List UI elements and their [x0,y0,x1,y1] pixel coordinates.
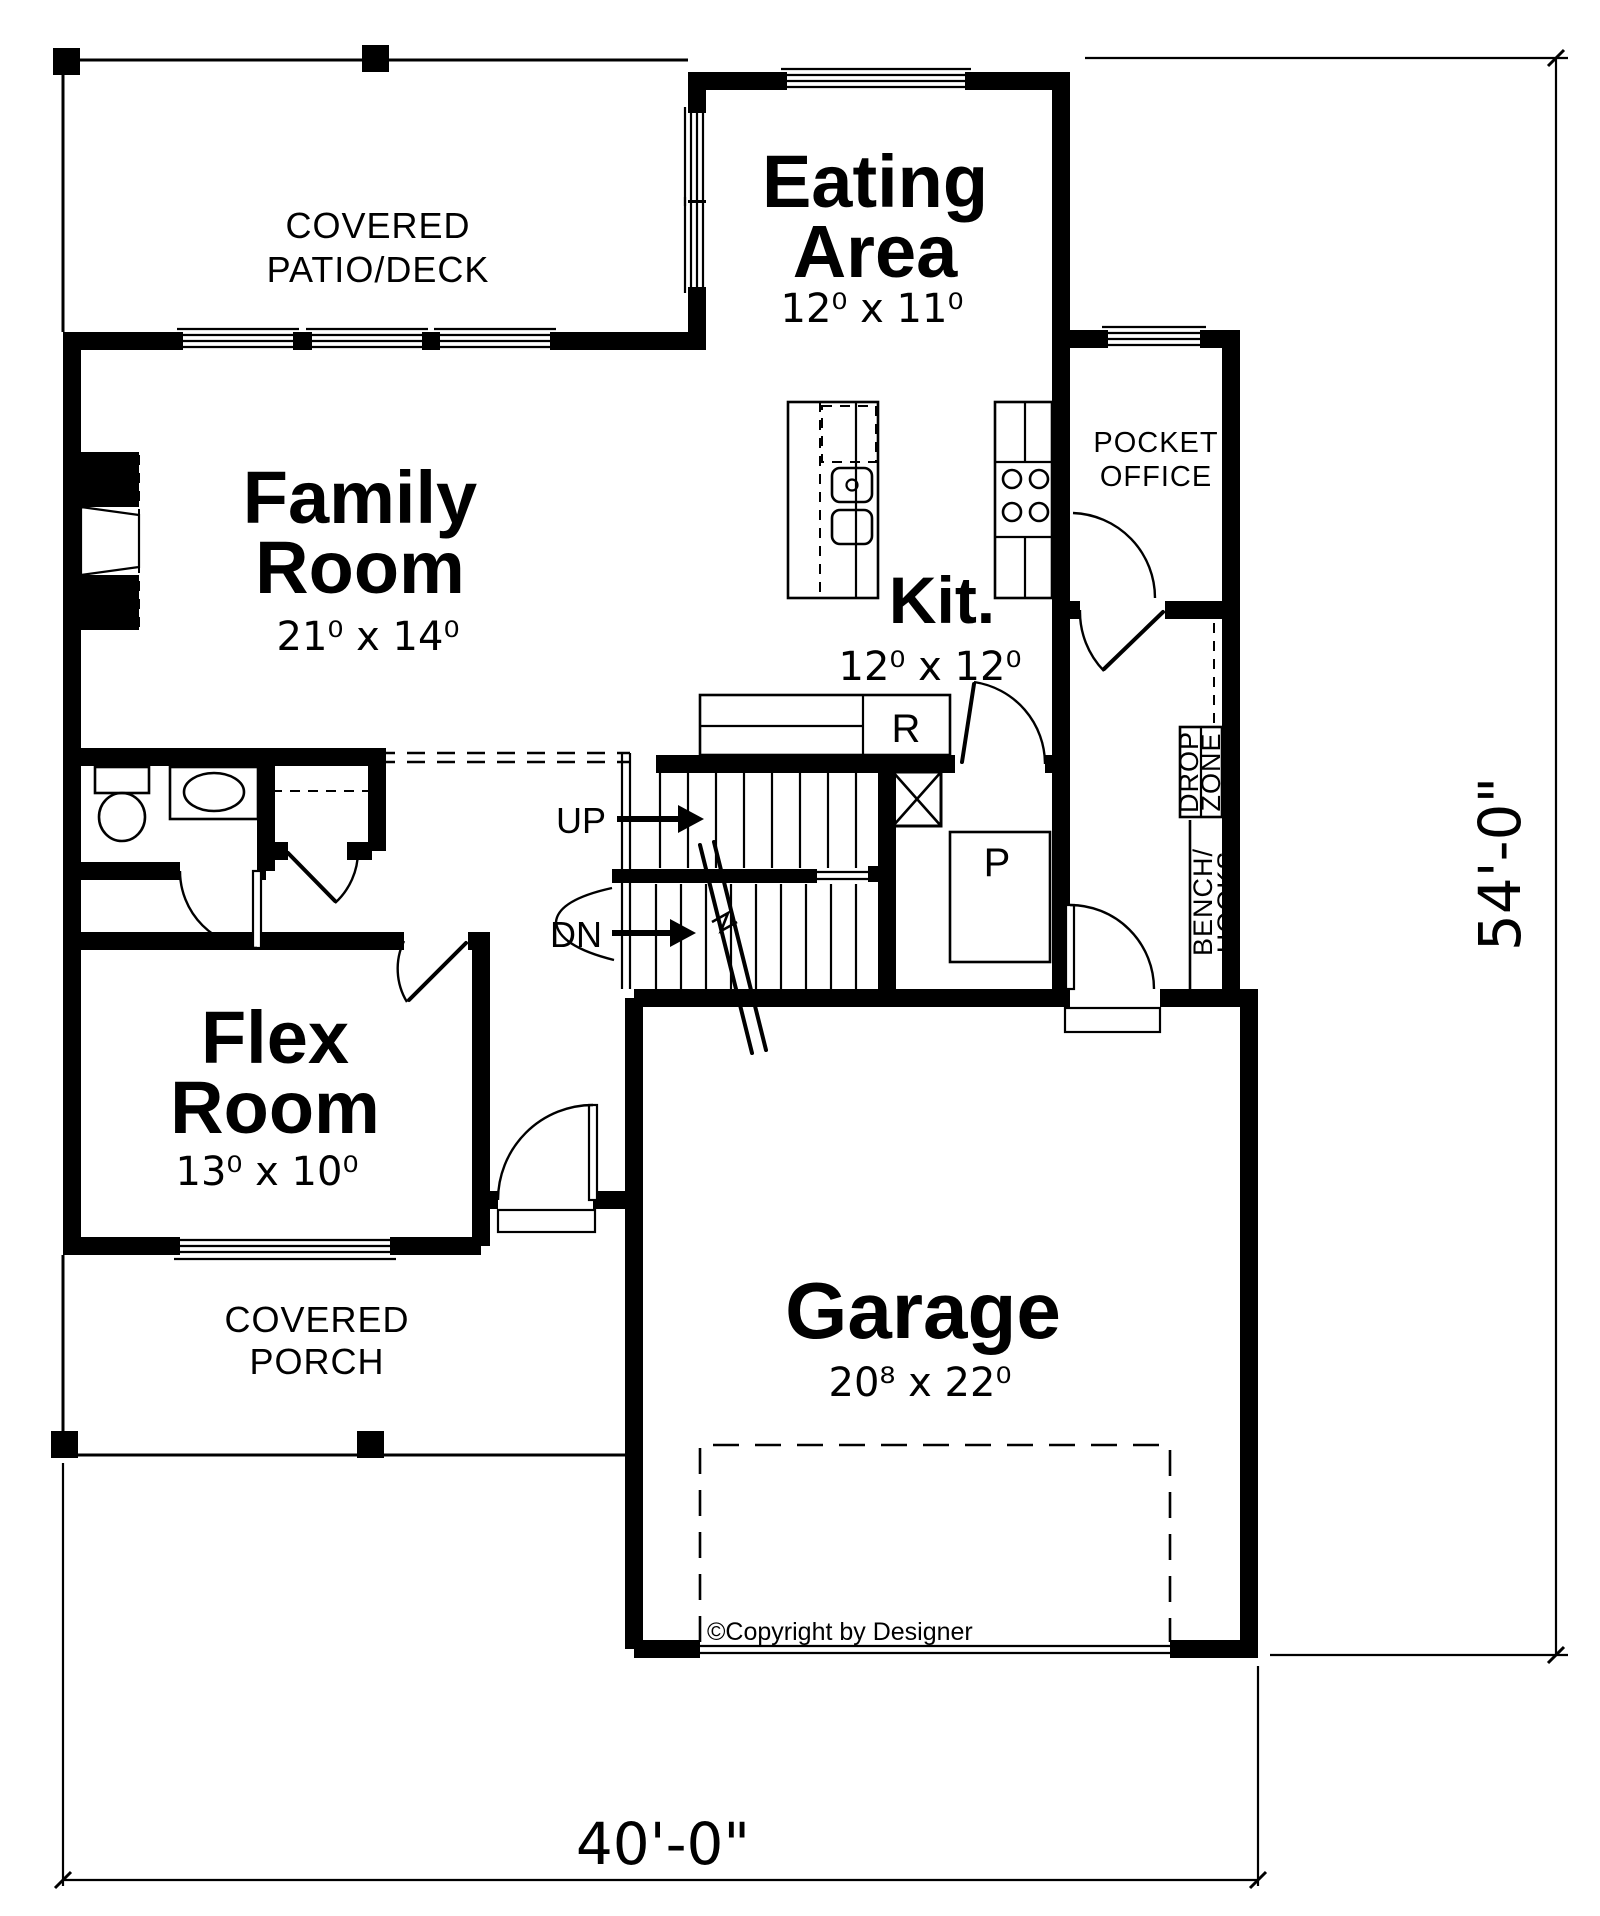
garage-service-door-swing [1070,905,1154,989]
kitchen-fixtures [700,402,1052,755]
flex-room-window [174,1240,396,1259]
patio-post [53,48,80,75]
toilet-bowl [99,793,145,841]
stair-handrail [817,872,872,879]
eating-area-label: Area [793,210,958,293]
covered-porch-label: COVERED [224,1299,409,1340]
sink-basin [832,510,872,544]
burner-icon [1003,470,1021,488]
drop-zone-label: ZONE [1196,732,1226,811]
up-arrowhead-icon [678,805,704,833]
up-label: UP [556,800,606,841]
overall-depth-dimension: 54'-0" [1466,777,1534,951]
eating-area-dims: 12⁰ x 11⁰ [781,286,964,332]
garage-door-track [700,1445,1170,1642]
eating-area-side-window [685,107,703,206]
floor-plan-drawing: COVERED PATIO/DECK Eating Area 12⁰ x 11⁰… [0,0,1600,1916]
pocket-office-door-leaf [1104,612,1163,669]
powder-door-leaf [253,871,261,948]
bench-hooks-label: HOOKS [1212,851,1242,954]
flex-room-label: Room [170,1066,380,1149]
flex-room-dims: 13⁰ x 10⁰ [176,1149,359,1195]
flex-door-swing [398,941,407,1002]
covered-porch-label: PORCH [249,1341,384,1382]
toilet-tank [95,767,149,793]
eating-area-side-window [685,197,703,293]
interior-walls [63,330,1231,989]
family-room-window [177,329,299,347]
front-door-swing [498,1105,593,1200]
pantry-label: P [984,841,1011,885]
burner-icon [1003,503,1021,521]
range-counter [995,402,1052,598]
kitchen-label: Kit. [889,563,995,637]
refrigerator-label: R [892,707,921,751]
pocket-office-window [1102,327,1206,345]
down-label: DN [550,914,602,955]
pantry-door-leaf [962,684,974,762]
burner-icon [1030,470,1048,488]
flex-door-leaf [409,943,466,1000]
family-room-window [306,329,428,347]
closet-door-leaf [288,853,335,901]
garage-dims: 20⁸ x 22⁰ [829,1360,1012,1406]
pocket-office-label: POCKET [1093,427,1218,459]
garage-service-door-leaf [1066,905,1074,989]
family-room-window [434,329,556,347]
covered-patio-label: PATIO/DECK [267,249,490,290]
powder-room-fixtures [95,767,371,841]
eating-area-window [781,69,971,87]
front-door-leaf [589,1105,597,1200]
patio-post [362,45,389,72]
kitchen-dims: 12⁰ x 12⁰ [839,644,1022,690]
front-entry-step [498,1210,595,1232]
chase-column [893,772,941,826]
overall-width-dimension: 40'-0" [576,1810,750,1878]
pocket-office-inner-swing [1073,513,1155,598]
pantry-door-swing [974,682,1045,764]
garage-label: Garage [785,1266,1061,1355]
family-room-dims: 21⁰ x 14⁰ [277,614,460,660]
porch-post [357,1431,384,1458]
open-above-dashed-line [377,753,630,762]
copyright-text: ©Copyright by Designer [707,1618,973,1646]
garage-door-opening [700,1646,1170,1653]
porch-post [51,1431,78,1458]
down-arrowhead-icon [670,919,696,947]
pocket-office-door-swing [1080,610,1104,671]
floor-plan-sheet: COVERED PATIO/DECK Eating Area 12⁰ x 11⁰… [0,0,1600,1916]
handrail-post [868,866,880,882]
garage-entry-step [1065,1008,1160,1032]
burner-icon [1030,503,1048,521]
family-room-label: Room [255,526,465,609]
covered-patio-label: COVERED [285,205,470,246]
vanity-sink [184,773,244,811]
dishwasher [822,406,876,462]
sink-basin [832,468,872,502]
pocket-office-label: OFFICE [1100,461,1212,493]
